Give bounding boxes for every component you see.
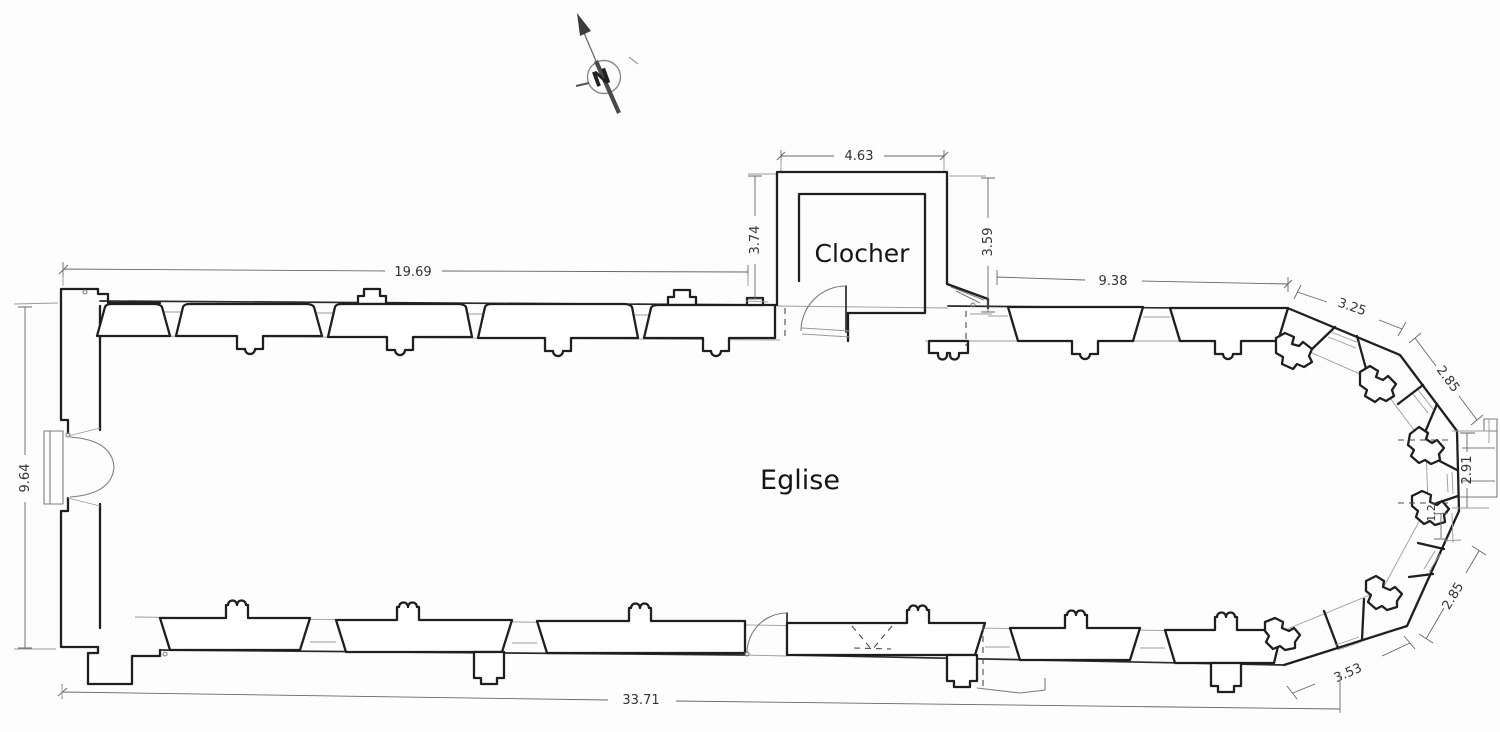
wall-pier-with-respond (644, 305, 775, 356)
apse-respond-pier (1408, 427, 1444, 464)
window-glazing (1447, 472, 1453, 494)
compass-tick-icon (576, 83, 589, 86)
wall-pier-with-respond (1170, 308, 1288, 359)
wall-pier-with-respond (537, 604, 745, 654)
svg-text:9.38: 9.38 (1099, 274, 1128, 289)
north-arrow: N (576, 13, 638, 113)
wall-pier-with-respond (478, 304, 638, 356)
floor-plan-drawing: Clocher (0, 0, 1500, 732)
svg-text:3.74: 3.74 (748, 226, 763, 255)
buttress (358, 289, 386, 304)
hinge-dot (83, 290, 87, 294)
wall-pier-with-respond (336, 603, 512, 653)
svg-text:2.85: 2.85 (1440, 580, 1468, 613)
dimension-north-wall-west: 19.69 (59, 262, 748, 286)
apse-window-splay (1409, 543, 1444, 577)
wall-pier-with-respond (787, 606, 985, 656)
buttress (947, 655, 977, 687)
bell-tower: Clocher (777, 172, 988, 360)
west-porch-threshold (44, 431, 63, 504)
wall-pier-with-respond (328, 304, 472, 355)
apse-respond-pier (1366, 576, 1402, 610)
svg-text:4.63: 4.63 (845, 149, 874, 164)
south-door-swing-arc (747, 613, 787, 653)
dimension-north-wall-east: 9.38 (997, 270, 1292, 292)
wall-pier (97, 304, 170, 336)
wall-pier-with-respond (1008, 307, 1143, 359)
apse-inner-face (1280, 341, 1428, 632)
nave-room-label: Eglise (760, 465, 840, 496)
svg-text:33.71: 33.71 (622, 693, 659, 708)
west-door-swing-arcs (70, 437, 114, 497)
compass-tick-icon (629, 57, 638, 64)
north-wall (97, 289, 775, 356)
tower-door-swing-arc (801, 286, 846, 331)
svg-text:2.85: 2.85 (1433, 363, 1462, 395)
dimension-tower-width: 4.63 (777, 149, 948, 171)
southwest-corner-buttress (61, 498, 160, 684)
apse-respond-pier (1265, 618, 1300, 650)
tower-room-label: Clocher (815, 239, 911, 268)
svg-text:2.91: 2.91 (1460, 456, 1475, 485)
svg-text:19.69: 19.69 (394, 265, 431, 280)
apse-window-splay (1310, 327, 1368, 376)
annex-foundation-line (977, 678, 1045, 693)
engaged-pier-double-respond (929, 341, 968, 360)
dimension-tower-side-left: 3.74 (746, 174, 776, 302)
svg-text:3.53: 3.53 (1332, 661, 1365, 686)
apse-respond-pier (1360, 366, 1396, 402)
wall-pier-with-respond (1010, 611, 1140, 661)
floor-plan-canvas: Clocher (0, 0, 1500, 732)
wall-pier-with-respond (176, 304, 322, 354)
extension-line (1452, 513, 1453, 543)
buttress (1211, 663, 1241, 692)
dimension-apse-north-1: 3.25 (1294, 285, 1406, 336)
west-facade (44, 289, 160, 684)
west-door-splay-lines (68, 428, 100, 506)
svg-text:1.2: 1.2 (1425, 504, 1438, 522)
svg-text:3.25: 3.25 (1336, 296, 1368, 320)
hinge-dot (163, 652, 167, 656)
compass-arrowhead-icon (577, 13, 591, 36)
dimension-south-wall-total: 33.71 (58, 672, 1340, 713)
wall-pier-with-respond (160, 601, 310, 651)
apse-respond-pier (1276, 333, 1312, 369)
north-wall-east (1008, 307, 1288, 359)
svg-text:3.59: 3.59 (981, 228, 996, 257)
tower-door-sill-lines (802, 328, 850, 337)
dimension-apse-north-2: 2.85 (1409, 333, 1483, 425)
south-wall (160, 601, 1282, 694)
buttress (474, 652, 504, 684)
wall-pier-with-respond (1165, 613, 1282, 664)
wall-line-under-tower (777, 306, 948, 308)
window-glazing-lines (160, 312, 1170, 656)
svg-text:9.64: 9.64 (18, 464, 33, 493)
apse (1265, 309, 1497, 665)
window-glazing (1328, 332, 1359, 348)
dimension-west-facade: 9.64 (14, 303, 58, 649)
buttress (668, 290, 696, 305)
